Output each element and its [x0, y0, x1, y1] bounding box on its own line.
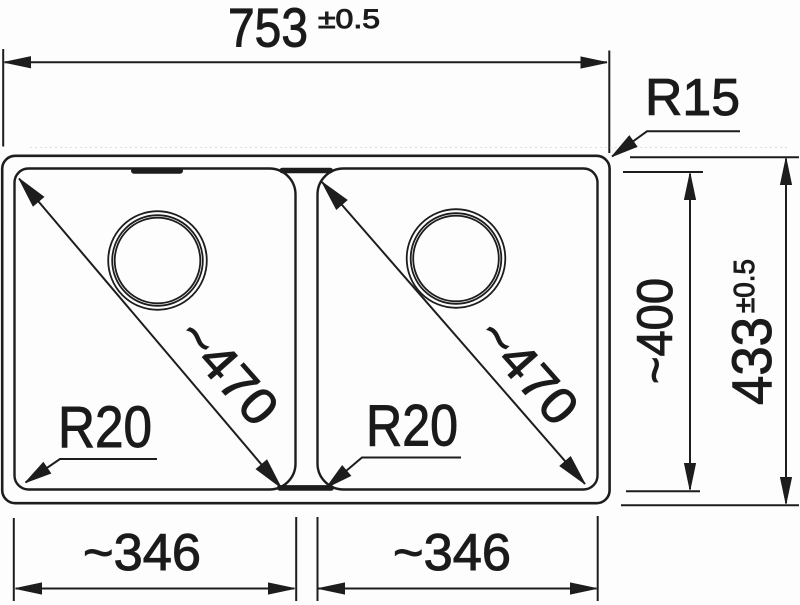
- svg-text:~400: ~400: [627, 278, 683, 384]
- svg-text:±0.5: ±0.5: [318, 4, 380, 34]
- svg-text:±0.5: ±0.5: [729, 259, 761, 313]
- svg-text:~346: ~346: [83, 524, 201, 582]
- svg-text:R20: R20: [58, 395, 152, 460]
- svg-text:R20: R20: [366, 394, 458, 459]
- svg-text:~346: ~346: [393, 524, 511, 582]
- svg-text:753: 753: [228, 0, 308, 59]
- svg-text:R15: R15: [645, 69, 740, 127]
- svg-text:433: 433: [720, 317, 783, 405]
